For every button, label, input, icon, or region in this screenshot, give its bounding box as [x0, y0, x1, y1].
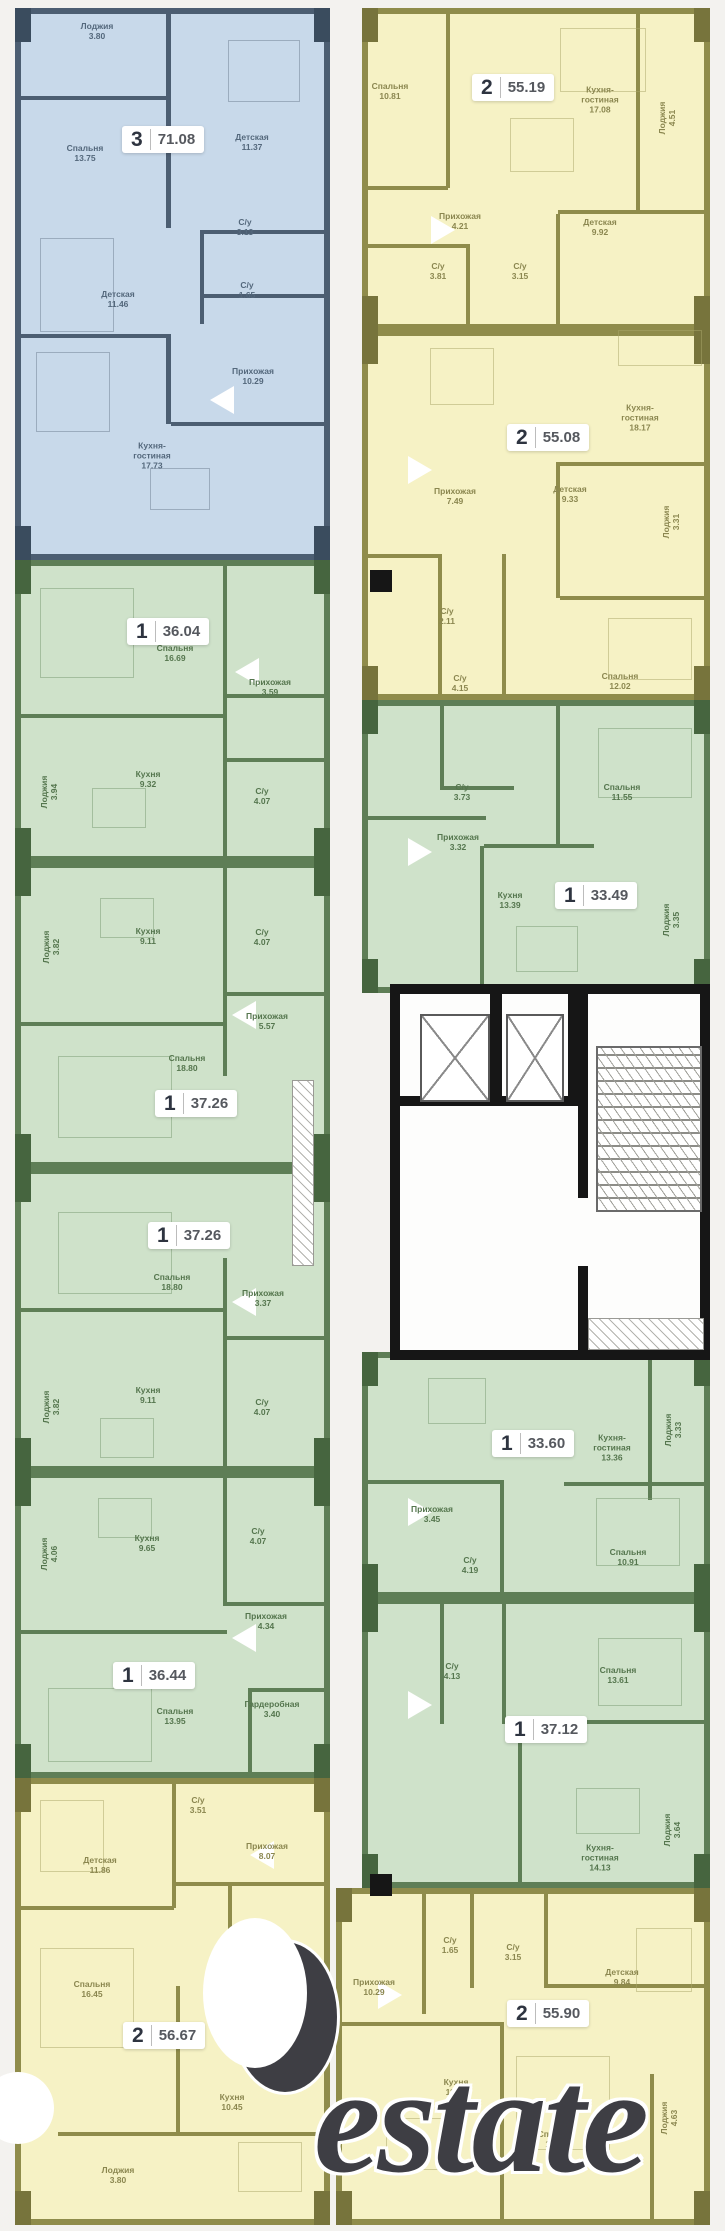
wall-pillar [15, 1472, 31, 1506]
room-area: 2.11 [439, 617, 455, 627]
interior-wall [556, 706, 560, 846]
badge-divider [535, 427, 536, 448]
room-label: Кухня-гостиная18.17 [610, 403, 670, 432]
wall-pillar [15, 526, 31, 560]
room-area: 13.75 [67, 154, 104, 164]
furniture-outline [516, 926, 578, 972]
badge-divider [176, 1225, 177, 1246]
room-area: 3.82 [52, 1391, 62, 1424]
unit-rooms-count: 1 [501, 1433, 513, 1454]
room-label: С/у3.73 [454, 783, 471, 803]
room-label: С/у4.19 [462, 1556, 479, 1576]
room-area: 4.51 [668, 102, 678, 135]
unit-badge-apt-green-33-60: 133.60 [492, 1430, 574, 1457]
room-label: Лоджия3.33 [664, 1414, 684, 1447]
interior-wall [172, 1784, 176, 1908]
room-area: 11.46 [101, 300, 135, 310]
room-area: 11.55 [604, 793, 641, 803]
core-wall [578, 992, 588, 1198]
furniture-outline [92, 788, 146, 828]
room-label: Лоджия3.64 [663, 1814, 683, 1847]
unit-rooms-count: 2 [516, 2003, 528, 2024]
room-label: Спальня10.91 [610, 1548, 647, 1568]
wall-pillar [314, 560, 330, 594]
interior-wall [223, 868, 227, 996]
unit-badge-apt-green-36-44: 136.44 [113, 1662, 195, 1689]
interior-wall [176, 1986, 180, 2136]
room-area: 4.13 [444, 1672, 461, 1682]
interior-wall [21, 96, 166, 100]
room-area: 3.13 [237, 228, 254, 238]
interior-wall [58, 2132, 328, 2136]
room-area: 4.06 [50, 1538, 60, 1571]
furniture-outline [636, 1928, 692, 1992]
interior-wall [368, 186, 448, 190]
wall-pillar [694, 1854, 710, 1888]
door-wedge [408, 456, 432, 484]
room-area: 17.73 [122, 461, 182, 471]
furniture-outline [510, 118, 574, 172]
room-label: Лоджия3.35 [662, 904, 682, 937]
watermark-text: estate [314, 2046, 646, 2196]
room-area: 10.81 [372, 92, 409, 102]
elevator-shaft-1 [420, 1014, 490, 1102]
unit-badge-apt-blue-71-08: 371.08 [122, 126, 204, 153]
unit-rooms-count: 2 [516, 427, 528, 448]
room-label: Спальня10.81 [372, 82, 409, 102]
wall-pillar [362, 959, 378, 993]
badge-divider [151, 2025, 152, 2046]
floor-plan-canvas: estate 371.08Лоджия3.80Детская11.37Спаль… [0, 0, 725, 2231]
room-label: Лоджия3.94 [40, 776, 60, 809]
furniture-outline [36, 352, 110, 432]
room-area: 3.59 [249, 688, 291, 698]
wall-pillar [362, 666, 378, 700]
room-area: 3.73 [454, 793, 471, 803]
room-area: 9.65 [135, 1544, 160, 1554]
room-label: Спальня12.02 [602, 672, 639, 692]
room-area: 3.45 [411, 1515, 453, 1525]
room-label: Спальня18.80 [169, 1054, 206, 1074]
core-wall [390, 984, 400, 1360]
room-label: Спальня16.45 [74, 1980, 111, 2000]
room-label: Лоджия3.80 [102, 2166, 135, 2186]
unit-total-area: 37.26 [191, 1096, 229, 1111]
room-label: Кухня-гостиная13.36 [582, 1433, 642, 1462]
room-label: Прихожая8.07 [246, 1842, 288, 1862]
furniture-outline [150, 468, 210, 510]
unit-total-area: 37.26 [184, 1228, 222, 1243]
furniture-outline [48, 1688, 152, 1762]
unit-badge-apt-green-37-26-b: 137.26 [148, 1222, 230, 1249]
room-label: С/у4.07 [254, 1398, 271, 1418]
interior-wall [223, 1478, 227, 1606]
room-area: 11.86 [83, 1866, 117, 1876]
room-label: С/у3.15 [505, 1943, 522, 1963]
wall-pillar [15, 1134, 31, 1168]
room-area: 3.82 [52, 931, 62, 964]
room-label: С/у4.15 [452, 674, 469, 694]
furniture-outline [430, 348, 494, 405]
wall-pillar [314, 828, 330, 862]
room-label: С/у3.51 [190, 1796, 207, 1816]
unit-badge-apt-green-33-49: 133.49 [555, 882, 637, 909]
furniture-outline [40, 238, 114, 332]
unit-total-area: 37.12 [541, 1722, 579, 1737]
wall-pillar [15, 560, 31, 594]
room-area: 18.17 [610, 423, 670, 433]
room-label: Спальня11.55 [604, 783, 641, 803]
interior-wall [21, 714, 227, 718]
interior-wall [21, 1906, 174, 1910]
furniture-outline [576, 1788, 640, 1834]
badge-divider [155, 621, 156, 642]
room-area: 9.11 [136, 937, 161, 947]
interior-wall [650, 2074, 654, 2219]
interior-wall [440, 706, 444, 788]
wall-pillar [314, 1778, 330, 1812]
core-wall [490, 992, 502, 1098]
wall-pillar [362, 1598, 378, 1632]
badge-divider [533, 1719, 534, 1740]
wall-pillar [314, 1134, 330, 1168]
wall-pillar [694, 296, 710, 330]
room-label: Спальня16.69 [157, 644, 194, 664]
unit-total-area: 55.19 [508, 80, 546, 95]
interior-wall [560, 596, 704, 600]
core-wall [390, 984, 710, 994]
wall-pillar [694, 1598, 710, 1632]
badge-divider [500, 77, 501, 98]
interior-wall [223, 1340, 227, 1466]
room-label: С/у4.07 [254, 928, 271, 948]
room-name: Кухня-гостиная [122, 441, 182, 461]
wall-pillar [15, 8, 31, 42]
interior-wall [422, 1894, 426, 2014]
room-area: 9.11 [136, 1396, 161, 1406]
room-area: 3.37 [242, 1299, 284, 1309]
room-label: Прихожая4.21 [439, 212, 481, 232]
interior-wall [502, 1604, 506, 1724]
room-label: Кухня9.65 [135, 1534, 160, 1554]
room-area: 3.15 [505, 1953, 522, 1963]
room-area: 4.63 [670, 2102, 680, 2135]
room-label: Детская9.33 [553, 485, 587, 505]
interior-wall [368, 816, 486, 820]
room-area: 7.49 [434, 497, 476, 507]
furniture-outline [618, 330, 702, 366]
staircase [596, 1046, 702, 1212]
room-area: 4.07 [254, 938, 271, 948]
interior-wall [223, 1336, 324, 1340]
unit-total-area: 33.49 [591, 888, 629, 903]
room-label: Кухня-гостиная14.13 [570, 1843, 630, 1872]
interior-wall [248, 1688, 324, 1692]
interior-wall [368, 244, 470, 248]
interior-wall [518, 1724, 522, 1882]
interior-wall [204, 294, 324, 298]
room-label: Детская9.84 [605, 1968, 639, 1988]
furniture-outline [238, 2142, 302, 2192]
interior-wall [440, 786, 514, 790]
interior-wall [21, 1022, 227, 1026]
hatched-strip-core [588, 1318, 704, 1350]
room-area: 1.65 [442, 1946, 459, 1956]
room-label: С/у4.13 [444, 1662, 461, 1682]
badge-divider [535, 2003, 536, 2024]
furniture-outline [560, 28, 646, 92]
interior-wall [223, 566, 227, 698]
room-area: 3.15 [512, 272, 529, 282]
room-area: 13.61 [600, 1676, 637, 1686]
furniture-outline [40, 588, 134, 678]
room-area: 4.21 [439, 222, 481, 232]
wall-pillar [694, 666, 710, 700]
room-area: 3.80 [81, 32, 114, 42]
unit-total-area: 36.04 [163, 624, 201, 639]
wall-pillar [362, 330, 378, 364]
room-label: С/у4.07 [250, 1527, 267, 1547]
room-area: 9.32 [136, 780, 161, 790]
interior-wall [466, 248, 470, 324]
room-label: Прихожая5.57 [246, 1012, 288, 1032]
wall-pillar [314, 1744, 330, 1778]
room-label: С/у3.13 [237, 218, 254, 238]
wall-pillar [314, 526, 330, 560]
door-wedge [408, 1691, 432, 1719]
badge-divider [150, 129, 151, 150]
interior-wall [502, 554, 506, 694]
interior-wall [176, 1882, 328, 1886]
room-area: 1.65 [239, 291, 256, 301]
interior-wall [21, 334, 170, 338]
room-label: С/у2.11 [439, 607, 455, 627]
wall-pillar [362, 8, 378, 42]
interior-wall [223, 992, 324, 996]
room-label: Кухня9.11 [136, 1386, 161, 1406]
wall-pillar [362, 296, 378, 330]
room-label: Прихожая3.45 [411, 1505, 453, 1525]
interior-wall [470, 1894, 474, 1988]
wall-pillar [694, 1564, 710, 1598]
unit-rooms-count: 1 [122, 1665, 134, 1686]
door-wedge [408, 838, 432, 866]
room-area: 5.57 [246, 1022, 288, 1032]
room-area: 10.45 [220, 2103, 245, 2113]
interior-wall [166, 14, 171, 228]
room-label: Спальня13.75 [67, 144, 104, 164]
room-label: Прихожая4.34 [245, 1612, 287, 1632]
room-label: Лоджия3.82 [42, 1391, 62, 1424]
furniture-outline [98, 1498, 152, 1538]
room-label: Кухня9.11 [136, 927, 161, 947]
room-area: 3.94 [50, 776, 60, 809]
room-label: Прихожая3.37 [242, 1289, 284, 1309]
interior-wall [560, 462, 704, 466]
interior-wall [171, 422, 324, 426]
room-area: 3.35 [672, 904, 682, 937]
room-area: 3.33 [674, 1414, 684, 1447]
room-area: 4.15 [452, 684, 469, 694]
room-name: Кухня-гостиная [610, 403, 670, 423]
badge-divider [583, 885, 584, 906]
wall-pillar [15, 828, 31, 862]
room-area: 4.07 [254, 797, 271, 807]
room-area: 4.19 [462, 1566, 479, 1576]
wall-pillar [362, 1352, 378, 1386]
room-area: 3.40 [245, 1710, 300, 1720]
room-name: Кухня-гостиная [582, 1433, 642, 1453]
room-area: 8.07 [246, 1852, 288, 1862]
interior-wall [648, 1358, 652, 1500]
crescent-cut-shape [203, 1918, 307, 2068]
furniture-outline [100, 1418, 154, 1458]
interior-wall [223, 1258, 227, 1340]
interior-wall [21, 1630, 227, 1634]
room-label: Прихожая10.29 [232, 367, 274, 387]
room-label: С/у1.65 [239, 281, 256, 301]
room-name: Кухня-гостиная [570, 85, 630, 105]
interior-wall [223, 698, 227, 856]
unit-badge-apt-green-37-12: 137.12 [505, 1716, 587, 1743]
unit-rooms-count: 2 [481, 77, 493, 98]
wall-pillar [314, 1472, 330, 1506]
unit-rooms-count: 2 [132, 2025, 144, 2046]
room-area: 3.51 [190, 1806, 207, 1816]
wall-pillar [694, 2191, 710, 2225]
room-label: Прихожая3.32 [437, 833, 479, 853]
interior-wall [556, 462, 560, 598]
room-area: 14.13 [570, 1863, 630, 1873]
room-area: 3.31 [672, 506, 682, 539]
room-label: Прихожая10.29 [353, 1978, 395, 1998]
unit-total-area: 33.60 [528, 1436, 566, 1451]
interior-wall [544, 1894, 548, 1988]
black-pillar [370, 570, 392, 592]
room-label: Лоджия4.51 [658, 102, 678, 135]
wall-pillar [314, 1438, 330, 1472]
wall-pillar [15, 862, 31, 896]
room-area: 16.45 [74, 1990, 111, 2000]
room-area: 17.08 [570, 105, 630, 115]
core-wall [390, 1350, 710, 1360]
wall-pillar [362, 700, 378, 734]
room-area: 13.36 [582, 1453, 642, 1463]
interior-wall [368, 554, 440, 558]
room-label: Лоджия4.06 [40, 1538, 60, 1571]
room-area: 4.34 [245, 1622, 287, 1632]
interior-wall [556, 214, 560, 324]
unit-badge-apt-yellow-55-90: 255.90 [507, 2000, 589, 2027]
wall-pillar [694, 700, 710, 734]
room-label: Лоджия3.31 [662, 506, 682, 539]
unit-badge-apt-green-37-26-a: 137.26 [155, 1090, 237, 1117]
room-label: С/у1.65 [442, 1936, 459, 1956]
room-label: Детская11.86 [83, 1856, 117, 1876]
hatched-strip-left [292, 1080, 314, 1266]
core-wall [578, 1266, 588, 1356]
interior-wall [500, 1482, 504, 1592]
room-area: 10.29 [232, 377, 274, 387]
room-area: 10.29 [353, 1988, 395, 1998]
room-area: 12.02 [602, 682, 639, 692]
room-label: Лоджия3.80 [81, 22, 114, 42]
unit-rooms-count: 1 [164, 1093, 176, 1114]
room-label: Спальня13.61 [600, 1666, 637, 1686]
room-label: Лоджия4.63 [660, 2102, 680, 2135]
room-label: Кухня13.39 [498, 891, 523, 911]
unit-badge-apt-yellow-56-67: 256.67 [123, 2022, 205, 2049]
interior-wall [368, 1480, 504, 1484]
wall-pillar [362, 1564, 378, 1598]
room-label: Кухня10.45 [220, 2093, 245, 2113]
room-label: Спальня13.95 [157, 1707, 194, 1727]
unit-rooms-count: 1 [514, 1719, 526, 1740]
unit-total-area: 55.08 [543, 430, 581, 445]
room-label: С/у4.07 [254, 787, 271, 807]
unit-rooms-count: 3 [131, 129, 143, 150]
room-area: 11.37 [235, 143, 269, 153]
wall-pillar [694, 8, 710, 42]
room-label: С/у3.81 [430, 262, 447, 282]
room-label: Кухня-гостиная17.08 [570, 85, 630, 114]
interior-wall [484, 844, 594, 848]
elevator-shaft-2 [506, 1014, 564, 1102]
wall-pillar [15, 1744, 31, 1778]
wall-pillar [15, 1168, 31, 1202]
unit-total-area: 56.67 [159, 2028, 197, 2043]
unit-rooms-count: 1 [564, 885, 576, 906]
unit-badge-apt-green-36-04: 136.04 [127, 618, 209, 645]
room-label: Прихожая3.59 [249, 678, 291, 698]
furniture-outline [428, 1378, 486, 1424]
wall-pillar [694, 1888, 710, 1922]
room-area: 3.81 [430, 272, 447, 282]
room-label: Детская9.92 [583, 218, 617, 238]
unit-total-area: 71.08 [158, 132, 196, 147]
wall-pillar [15, 2191, 31, 2225]
room-area: 3.64 [673, 1814, 683, 1847]
unit-badge-apt-yellow-55-19: 255.19 [472, 74, 554, 101]
interior-wall [446, 14, 450, 188]
room-area: 10.91 [610, 1558, 647, 1568]
room-area: 3.32 [437, 843, 479, 853]
room-area: 13.39 [498, 901, 523, 911]
furniture-outline [228, 40, 300, 102]
wall-pillar [314, 1168, 330, 1202]
badge-divider [183, 1093, 184, 1114]
interior-wall [200, 234, 204, 324]
interior-wall [223, 1602, 324, 1606]
room-label: С/у3.15 [512, 262, 529, 282]
unit-total-area: 55.90 [543, 2006, 581, 2021]
room-label: Кухня9.32 [136, 770, 161, 790]
room-label: Детская11.37 [235, 133, 269, 153]
room-label: Детская11.46 [101, 290, 135, 310]
room-area: 9.33 [553, 495, 587, 505]
interior-wall [227, 758, 324, 762]
door-wedge [210, 386, 234, 414]
badge-divider [520, 1433, 521, 1454]
interior-wall [564, 1482, 704, 1486]
unit-badge-apt-yellow-55-08: 255.08 [507, 424, 589, 451]
interior-wall [480, 846, 484, 987]
badge-divider [141, 1665, 142, 1686]
room-area: 9.92 [583, 228, 617, 238]
interior-wall [166, 334, 171, 424]
wall-pillar [314, 8, 330, 42]
room-label: Кухня-гостиная17.73 [122, 441, 182, 470]
